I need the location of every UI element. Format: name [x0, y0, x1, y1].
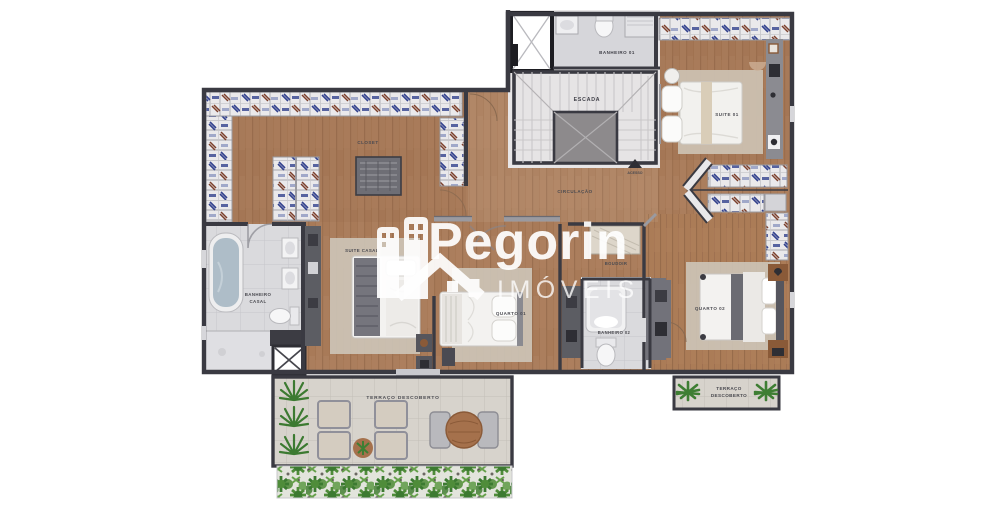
svg-text:IMÓVEIS: IMÓVEIS [497, 275, 640, 304]
svg-text:QUARTO 02: QUARTO 02 [695, 306, 725, 311]
svg-text:CLOSET: CLOSET [357, 140, 378, 145]
svg-text:BANHEIRO 02: BANHEIRO 02 [598, 330, 631, 335]
svg-text:BANHEIRO: BANHEIRO [245, 292, 272, 297]
svg-text:ESCADA: ESCADA [574, 97, 601, 103]
svg-text:SUITE 01: SUITE 01 [715, 112, 739, 117]
svg-text:ACESSO: ACESSO [627, 171, 642, 175]
svg-text:TERRAÇO: TERRAÇO [716, 386, 742, 391]
svg-text:CASAL: CASAL [249, 299, 266, 304]
svg-text:SUITE CASAL: SUITE CASAL [345, 248, 379, 253]
svg-text:BANHEIRO 01: BANHEIRO 01 [599, 50, 635, 55]
svg-text:DESCOBERTO: DESCOBERTO [711, 393, 747, 398]
svg-text:Pegorin: Pegorin [428, 213, 629, 271]
svg-text:QUARTO 01: QUARTO 01 [496, 311, 526, 316]
svg-text:CIRCULAÇÃO: CIRCULAÇÃO [557, 188, 592, 194]
